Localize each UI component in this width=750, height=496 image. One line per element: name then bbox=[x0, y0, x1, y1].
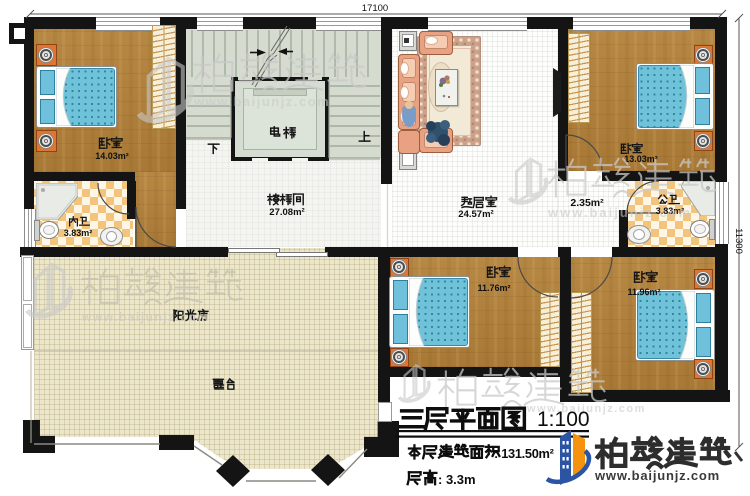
svg-text:www.baijunjz.com: www.baijunjz.com bbox=[594, 468, 720, 483]
svg-text:: 131.50m²: : 131.50m² bbox=[494, 446, 554, 461]
svg-text:14.03m²: 14.03m² bbox=[95, 151, 129, 161]
svg-text:www.baijunjz.com: www.baijunjz.com bbox=[547, 205, 692, 220]
svg-text:24.57m²: 24.57m² bbox=[458, 209, 493, 220]
svg-text:3.83m²: 3.83m² bbox=[64, 228, 93, 238]
svg-text:11300: 11300 bbox=[733, 228, 744, 254]
svg-text:17100: 17100 bbox=[362, 3, 388, 14]
svg-text:11.76m²: 11.76m² bbox=[477, 283, 510, 293]
svg-text:www.baijunjz.com: www.baijunjz.com bbox=[81, 310, 210, 324]
svg-text:www.baijunjz.com: www.baijunjz.com bbox=[193, 94, 330, 109]
svg-text:11.96m²: 11.96m² bbox=[627, 287, 660, 297]
svg-text:27.08m²: 27.08m² bbox=[269, 207, 304, 218]
svg-text:: 3.3m: : 3.3m bbox=[438, 472, 476, 487]
svg-text:1:100: 1:100 bbox=[537, 408, 590, 431]
